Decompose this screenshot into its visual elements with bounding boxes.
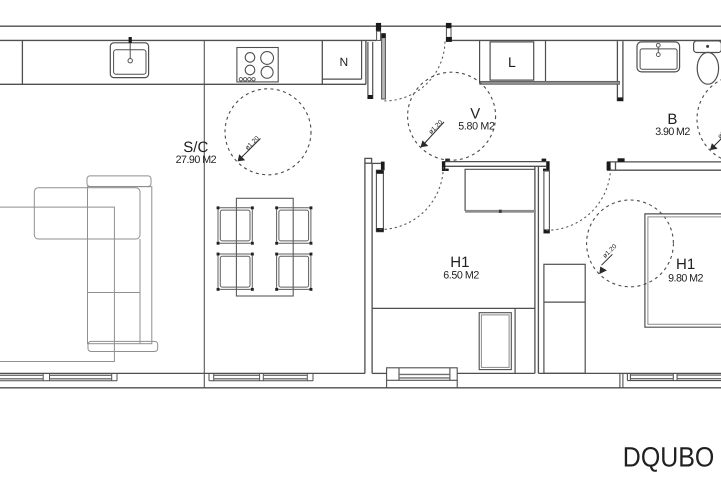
svg-text:5.80 M2: 5.80 M2: [458, 120, 495, 132]
svg-text:DQUBO: DQUBO: [623, 441, 715, 472]
svg-text:27.90 M2: 27.90 M2: [176, 154, 217, 166]
svg-text:3.90 M2: 3.90 M2: [655, 126, 690, 138]
svg-text:L: L: [508, 54, 516, 70]
svg-text:9.80 M2: 9.80 M2: [668, 272, 703, 284]
svg-text:H1: H1: [676, 256, 695, 273]
svg-text:N: N: [339, 55, 348, 69]
svg-text:6.50 M2: 6.50 M2: [443, 269, 479, 281]
svg-text:H1: H1: [450, 254, 469, 271]
